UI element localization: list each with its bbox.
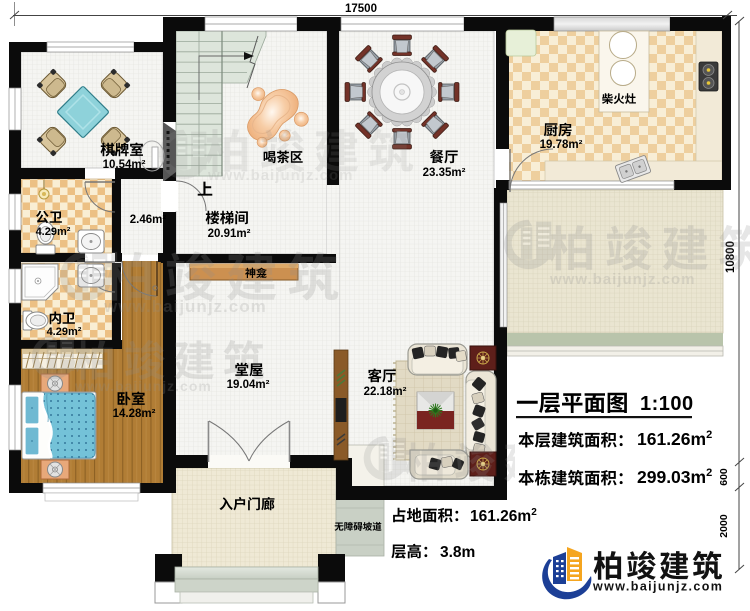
svg-text:1:100: 1:100 <box>640 393 694 415</box>
svg-text:161.26m2: 161.26m2 <box>637 429 712 449</box>
svg-text:www.baijunjz.com: www.baijunjz.com <box>549 271 695 288</box>
svg-text:19.78m²: 19.78m² <box>540 139 583 151</box>
svg-text:www.baijunjz.com: www.baijunjz.com <box>207 167 353 184</box>
svg-text:www.baijunjz.com: www.baijunjz.com <box>103 297 267 316</box>
svg-text:4.29m²: 4.29m² <box>47 326 82 338</box>
svg-text:3.8m: 3.8m <box>440 544 475 561</box>
svg-text:14.28m²: 14.28m² <box>113 408 156 420</box>
svg-text:22.18m²: 22.18m² <box>364 386 407 398</box>
svg-text:17500: 17500 <box>345 3 377 15</box>
svg-text:2000: 2000 <box>718 514 730 538</box>
svg-text:10.54m²: 10.54m² <box>103 159 146 171</box>
svg-text:299.03m2: 299.03m2 <box>637 467 712 487</box>
svg-text:23.35m²: 23.35m² <box>423 167 466 179</box>
svg-text:20.91m²: 20.91m² <box>208 228 251 240</box>
svg-text:161.26m2: 161.26m2 <box>470 507 537 525</box>
svg-text:19.04m²: 19.04m² <box>227 379 270 391</box>
svg-text:www.baijunjz.com: www.baijunjz.com <box>74 378 212 394</box>
svg-text:2.46m²: 2.46m² <box>130 214 167 226</box>
svg-text:www.baijunjz.com: www.baijunjz.com <box>592 580 723 594</box>
svg-text:600: 600 <box>718 468 730 486</box>
svg-text:4.29m²: 4.29m² <box>36 226 71 238</box>
